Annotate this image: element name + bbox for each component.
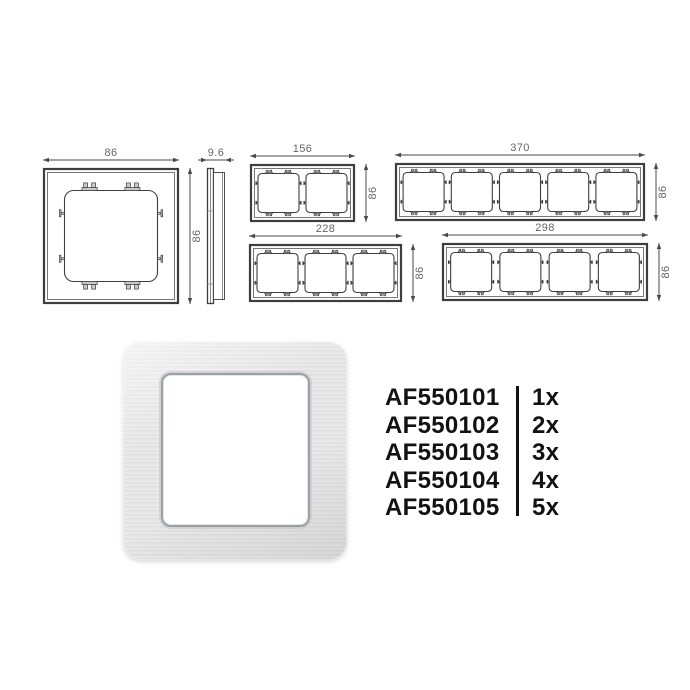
drawing-3gang-frame: 228 86	[248, 223, 434, 313]
part-sku: AF550102	[385, 412, 532, 440]
drawing-2gang-frame: 156 86	[249, 143, 385, 233]
parts-divider	[516, 386, 519, 516]
drawing-4gang-frame: 298 86	[441, 222, 681, 312]
part-qty: 2x	[532, 412, 559, 440]
dim-height-2gang: 86	[367, 186, 379, 199]
part-row: AF550103 3x	[385, 439, 559, 467]
drawing-front-view-1gang: 86 86	[42, 147, 214, 313]
part-qty: 1x	[532, 384, 559, 412]
drawing-5gang-frame: 370 86	[394, 142, 676, 232]
dim-width-3gang: 228	[316, 223, 336, 235]
part-sku: AF550103	[385, 439, 532, 467]
drawing-side-profile: 9.6	[198, 147, 246, 313]
part-row: AF550105 5x	[385, 494, 559, 522]
dim-width-4gang: 298	[535, 222, 555, 234]
parts-list: AF550101 1x AF550102 2x AF550103 3x AF55…	[385, 384, 559, 522]
side-back-housing	[214, 173, 225, 300]
dim-width-2gang: 156	[293, 143, 313, 155]
dim-height-3gang: 86	[414, 266, 426, 279]
product-photo-opening	[161, 373, 310, 527]
part-row: AF550102 2x	[385, 412, 559, 440]
dim-height-4gang: 86	[660, 265, 672, 278]
dim-depth-side: 9.6	[208, 147, 225, 159]
part-row: AF550104 4x	[385, 467, 559, 495]
spec-sheet: 86 86 9.6 156 86 370 86 228 86 298 86 A	[0, 0, 690, 690]
part-sku: AF550105	[385, 494, 532, 522]
part-row: AF550101 1x	[385, 384, 559, 412]
product-photo	[123, 342, 347, 560]
part-qty: 4x	[532, 467, 559, 495]
part-qty: 3x	[532, 439, 559, 467]
part-sku: AF550101	[385, 384, 532, 412]
part-sku: AF550104	[385, 467, 532, 495]
part-qty: 5x	[532, 494, 559, 522]
dim-height-5gang: 86	[657, 185, 669, 198]
dim-width-1gang: 86	[104, 147, 117, 159]
dim-width-5gang: 370	[510, 142, 530, 154]
